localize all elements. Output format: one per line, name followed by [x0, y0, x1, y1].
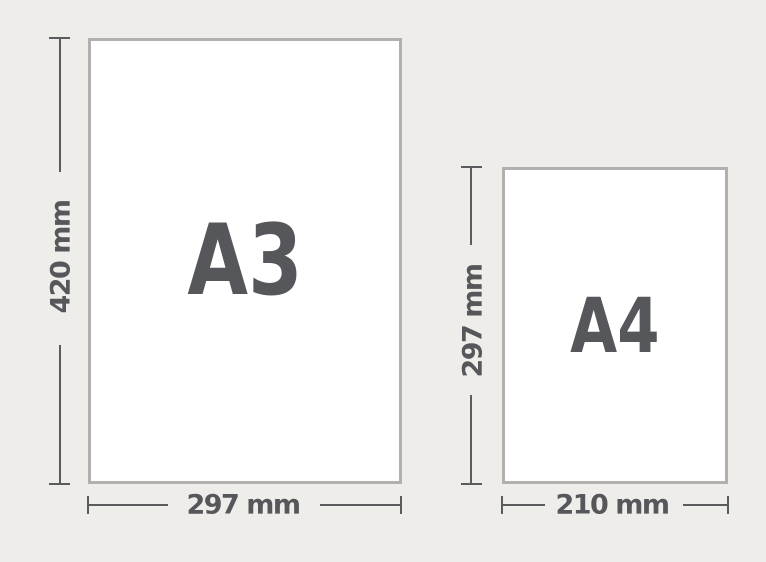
- a4-width-label: 210 mm: [555, 492, 668, 519]
- dimension-tick: [400, 496, 402, 514]
- paper-size-comparison-diagram: A3 A4 420 mm 297 mm 297 mm 210 mm: [0, 0, 766, 562]
- dimension-line-segment: [320, 504, 402, 506]
- dimension-line-segment: [59, 37, 61, 172]
- dimension-line-segment: [59, 345, 61, 484]
- a4-paper-sheet: A4: [502, 167, 728, 484]
- dimension-line-segment: [470, 166, 472, 245]
- dimension-line-segment: [501, 504, 545, 506]
- a3-width-label: 297 mm: [186, 492, 299, 519]
- dimension-tick: [727, 496, 729, 514]
- dimension-tick: [49, 483, 70, 485]
- dimension-line-segment: [87, 504, 168, 506]
- a3-height-label: 420 mm: [48, 200, 75, 313]
- a3-paper-sheet: A3: [88, 38, 402, 484]
- a4-height-label: 297 mm: [460, 264, 487, 377]
- a4-paper-label: A4: [570, 288, 659, 364]
- dimension-line-segment: [470, 395, 472, 484]
- dimension-tick: [461, 483, 482, 485]
- a3-paper-label: A3: [187, 212, 302, 310]
- dimension-line-segment: [683, 504, 729, 506]
